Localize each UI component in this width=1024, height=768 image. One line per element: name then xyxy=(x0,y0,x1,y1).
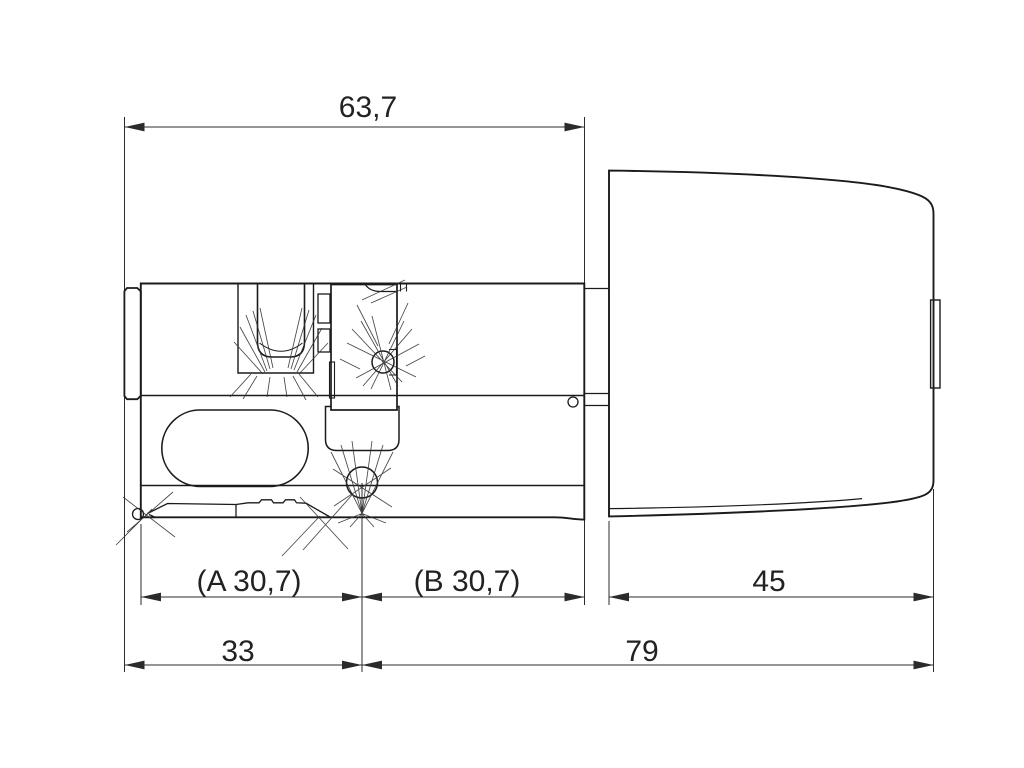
front-cap xyxy=(124,288,140,399)
sketch-strokes xyxy=(116,280,425,556)
arrow-left xyxy=(125,123,145,132)
arrow-left xyxy=(362,661,382,670)
sketch-lines xyxy=(116,280,425,556)
arrow-right xyxy=(342,661,362,670)
dimension-label-knob: 45 xyxy=(752,565,785,598)
arrow-left xyxy=(362,593,382,602)
dimension-body-rear: 79 xyxy=(362,635,934,669)
profile-stadium-cutout xyxy=(162,410,308,486)
neck-lines xyxy=(584,289,609,406)
dimension-label-overall: 63,7 xyxy=(339,91,397,124)
keyway-slot-inner-arc xyxy=(260,343,303,351)
arrow-right xyxy=(342,593,362,602)
knob-contact-window xyxy=(931,300,940,388)
dimension-label-module-b: (B 30,7) xyxy=(414,565,521,598)
dimension-knob: 45 xyxy=(609,565,934,601)
knob-outline xyxy=(609,171,934,517)
arrow-left xyxy=(141,593,161,602)
dimension-module-a: (A 30,7) xyxy=(141,565,362,601)
knob-silhouette-line xyxy=(609,499,862,509)
cam-block xyxy=(331,285,397,411)
technical-drawing-canvas: 63,7 (A 30,7) (B 30,7) 45 33 79 xyxy=(0,0,1024,768)
arrow-right xyxy=(565,593,585,602)
dimension-label-rear: 79 xyxy=(625,635,658,668)
spring-clip-loop xyxy=(133,509,144,520)
arrow-right xyxy=(565,123,585,132)
dimension-module-b: (B 30,7) xyxy=(362,565,585,601)
spring-clip xyxy=(148,500,331,517)
dimension-overall: 63,7 xyxy=(125,91,585,131)
dimension-body-front: 33 xyxy=(125,635,363,669)
arrow-right xyxy=(914,593,934,602)
coupling-tab-upper xyxy=(318,294,330,323)
arrow-left xyxy=(609,593,629,602)
body-outline xyxy=(141,284,585,520)
knob xyxy=(609,171,940,517)
dimension-label-module-a: (A 30,7) xyxy=(196,565,301,598)
arrow-left xyxy=(125,661,145,670)
dimension-label-front: 33 xyxy=(221,635,254,668)
fixing-hole xyxy=(568,397,578,407)
keyway-window xyxy=(238,284,314,374)
arrow-right xyxy=(914,661,934,670)
cam-collar xyxy=(326,407,400,451)
